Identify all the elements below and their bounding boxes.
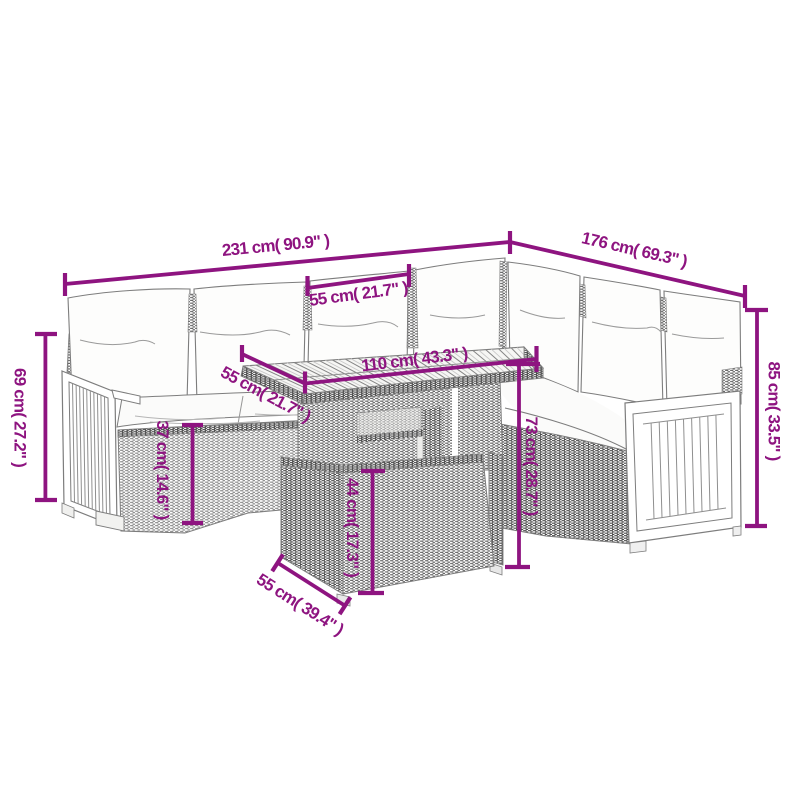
svg-text:73 cm( 28.7" ): 73 cm( 28.7" ) — [522, 417, 541, 516]
svg-text:69 cm( 27.2" ): 69 cm( 27.2" ) — [11, 368, 30, 467]
svg-text:37 cm( 14.6" ): 37 cm( 14.6" ) — [153, 421, 172, 520]
svg-text:85 cm( 33.5" ): 85 cm( 33.5" ) — [765, 362, 784, 461]
svg-text:44 cm( 17.3" ): 44 cm( 17.3" ) — [343, 478, 362, 577]
